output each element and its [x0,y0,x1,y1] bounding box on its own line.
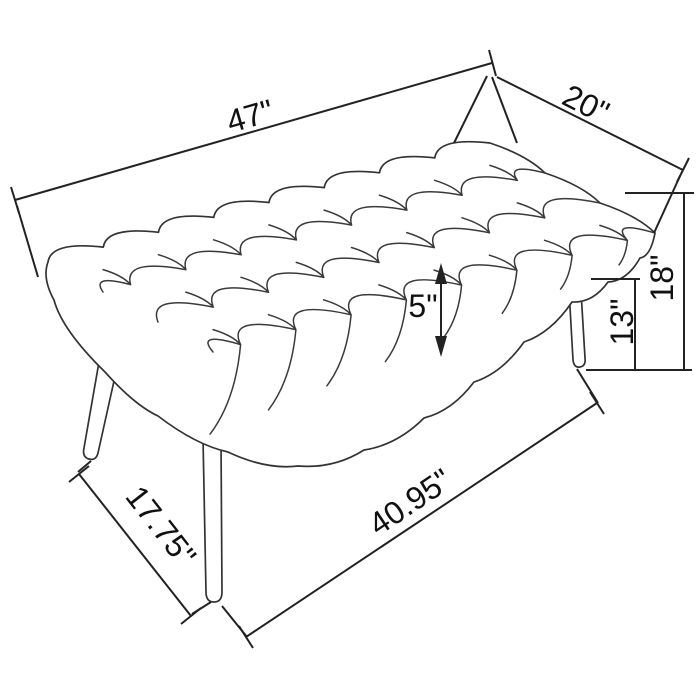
dimension-line-17-75: 17.75" [69,461,211,624]
extension-line [492,77,517,143]
dim-label-overall-height: 18" [644,255,680,302]
bench-leg-front [203,438,222,602]
diagram-canvas: 47" 20" 18" 13" 5" [0,0,700,700]
extension-line [577,369,598,403]
dim-label-leg-span-depth: 17.75" [119,479,204,573]
extension-line [192,602,211,614]
extension-line [17,206,38,277]
dim-label-leg-span-length: 40.95" [362,462,458,543]
extension-line [654,176,680,233]
dim-label-leg-height: 13" [604,299,640,346]
dim-label-cushion-thickness: 5" [408,288,437,324]
extension-line [222,606,247,637]
extension-line [454,76,487,143]
bench-dimension-diagram: 47" 20" 18" 13" 5" [0,0,700,700]
dim-label-top-length: 47" [222,92,277,140]
bench-seat-cushion [46,142,655,467]
dim-label-top-depth: 20" [557,77,615,130]
